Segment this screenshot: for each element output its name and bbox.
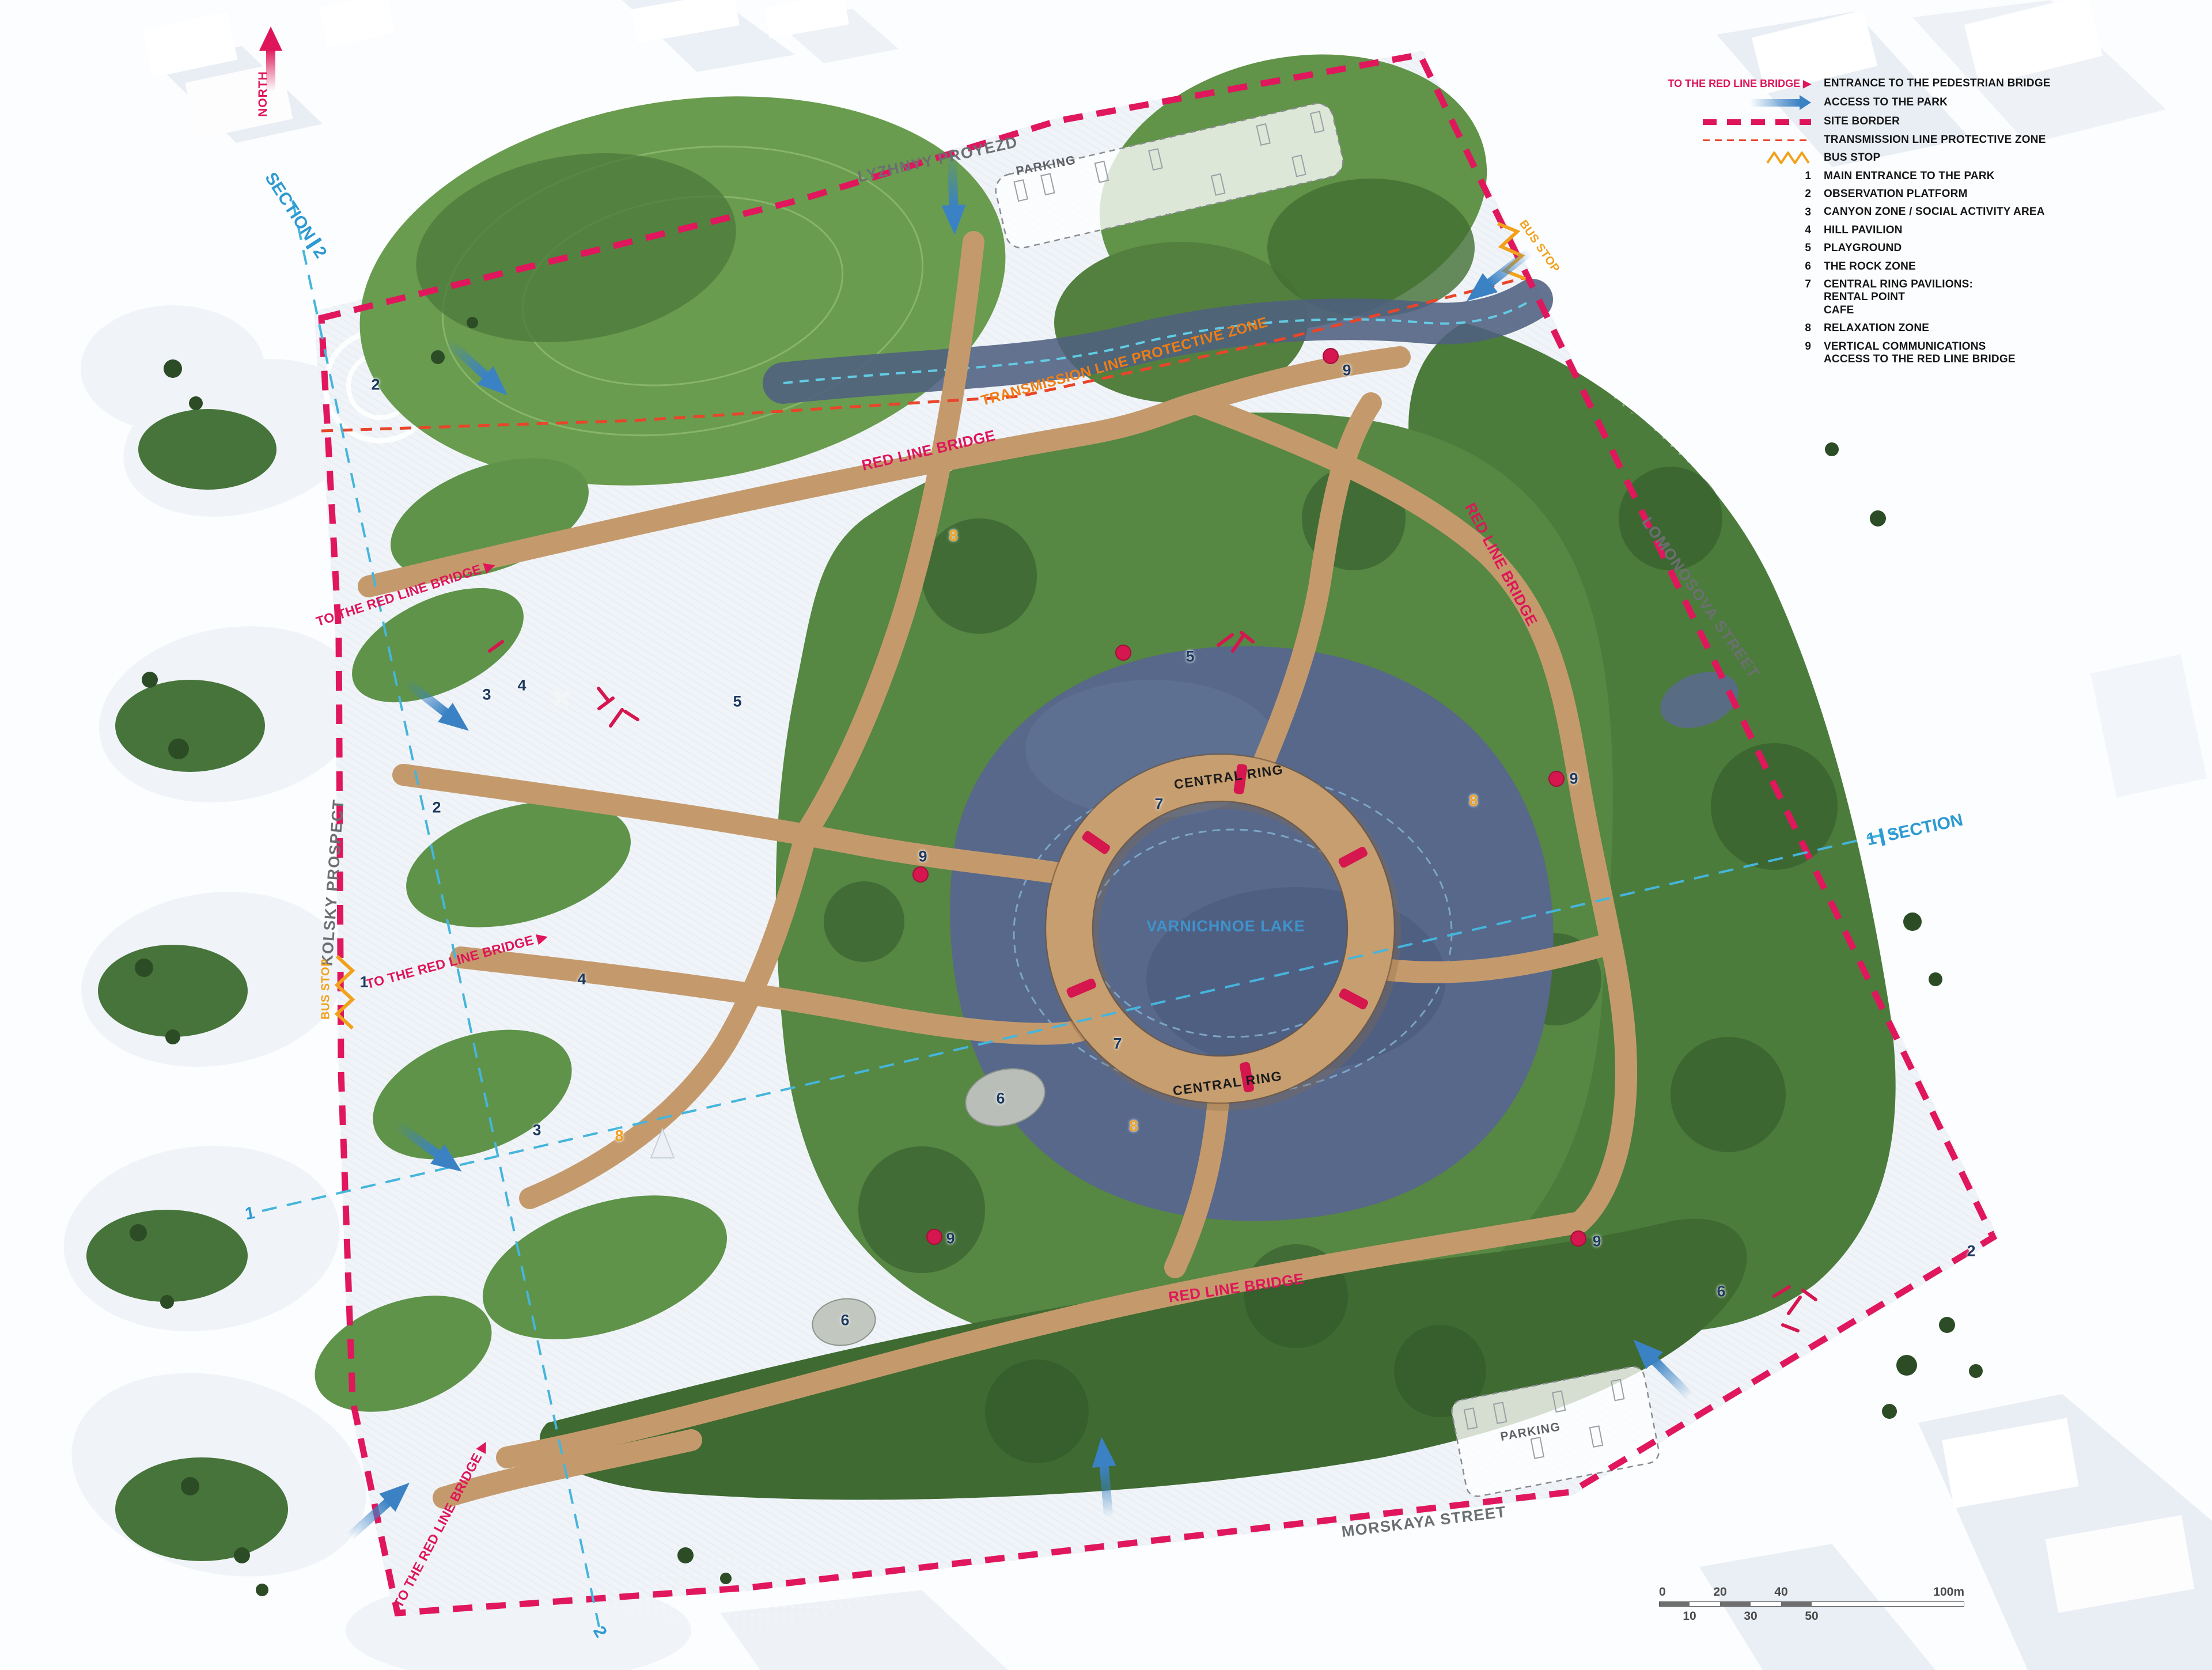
- transmission-line-icon: [1703, 139, 1811, 141]
- legend-label: BUS STOP: [1824, 152, 2051, 164]
- legend-label: SITE BORDER: [1824, 115, 2051, 128]
- scale-tick: 10: [1683, 1610, 1696, 1623]
- legend-label: TRANSMISSION LINE PROTECTIVE ZONE: [1824, 134, 2051, 146]
- legend-number: 2: [1700, 188, 1811, 200]
- site-border-icon: [1703, 119, 1811, 125]
- legend-label: CANYON ZONE / SOCIAL ACTIVITY AREA: [1824, 206, 2051, 218]
- scale-bar-strip: [1659, 1601, 1964, 1607]
- legend-key-to-bridge: TO THE RED LINE BRIDGE ▶: [1700, 78, 1811, 90]
- scale-tick: 50: [1805, 1610, 1818, 1623]
- legend-label: ENTRANCE TO THE PEDESTRIAN BRIDGE: [1824, 77, 2051, 90]
- legend-number: 3: [1700, 206, 1811, 219]
- scale-tick: 20: [1713, 1585, 1726, 1599]
- master-plan-page: NORTH LYZHNYY PROYEZD LOMONOSOVA STREET …: [0, 0, 2212, 1670]
- to-bridge-key-label: TO THE RED LINE BRIDGE ▶: [1668, 78, 1811, 90]
- legend-label: VERTICAL COMMUNICATIONS ACCESS TO THE RE…: [1824, 340, 2051, 366]
- scale-tick: 0: [1659, 1585, 1666, 1599]
- legend-key-site-border: [1700, 119, 1811, 125]
- legend-label: MAIN ENTRANCE TO THE PARK: [1824, 170, 2051, 183]
- legend: TO THE RED LINE BRIDGE ▶ ENTRANCE TO THE…: [1700, 77, 2051, 366]
- legend-key-transmission: [1700, 139, 1811, 141]
- legend-key-access-arrow: [1700, 95, 1811, 110]
- legend-label: RELAXATION ZONE: [1824, 322, 2051, 335]
- legend-number: 6: [1700, 260, 1811, 273]
- legend-number: 5: [1700, 242, 1811, 255]
- legend-number: 9: [1700, 340, 1811, 353]
- legend-key-bus-stop: [1700, 152, 1811, 164]
- legend-label: OBSERVATION PLATFORM: [1824, 188, 2051, 200]
- scale-bar: 0 20 40 100m 10 30 50: [1659, 1585, 1964, 1631]
- scale-tick: 100m: [1933, 1585, 1964, 1599]
- scale-tick: 40: [1774, 1585, 1787, 1599]
- legend-label: PLAYGROUND: [1824, 242, 2051, 255]
- access-arrow-icon: [1750, 95, 1811, 110]
- legend-label: CENTRAL RING PAVILIONS: RENTAL POINT CAF…: [1824, 278, 2051, 317]
- legend-label: ACCESS TO THE PARK: [1824, 96, 2051, 109]
- legend-label: THE ROCK ZONE: [1824, 260, 2051, 273]
- bus-stop-zigzag-icon: [1766, 152, 1811, 164]
- legend-number: 4: [1700, 224, 1811, 237]
- legend-number: 1: [1700, 170, 1811, 183]
- legend-number: 7: [1700, 278, 1811, 291]
- legend-number: 8: [1700, 322, 1811, 335]
- legend-label: HILL PAVILION: [1824, 224, 2051, 237]
- scale-tick: 30: [1744, 1610, 1757, 1623]
